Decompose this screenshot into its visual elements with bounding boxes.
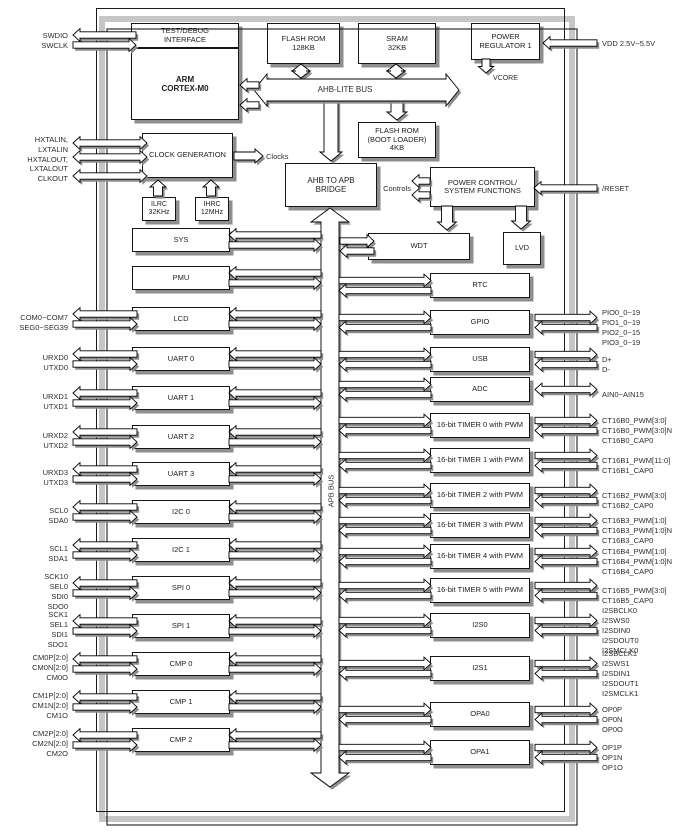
pin-label: CT16B2_CAP0: [602, 501, 686, 511]
block-opa1-label: OPA1: [470, 748, 489, 757]
pin-label: LXTALOUT: [2, 164, 68, 174]
block-16-bit-timer-0-with-pwm: 16-bit TIMER 0 with PWM: [430, 413, 530, 438]
pin-label: CT16B4_PWM[1:0]: [602, 547, 686, 557]
pin-label: OP1N: [602, 753, 686, 763]
pin-group-16-bit-timer-3-with-pwm: CT16B3_PWM[1:0]CT16B3_PWM[1:0]NCT16B3_CA…: [602, 516, 686, 546]
pin-label: I2SDOUT0: [602, 636, 686, 646]
block-ilrc-32khz-label: ILRC 32KHz: [148, 201, 169, 217]
pin-group-i2s1: I2SBCLK1I2SWS1I2SDIN1I2SDOUT1I2SMCLK1: [602, 649, 686, 699]
pin-label: CT16B3_PWM[1:0]: [602, 516, 686, 526]
block-lcd: LCD: [132, 307, 230, 331]
pin-label: CM2P[2:0]: [2, 729, 68, 739]
pin-label: I2SDIN1: [602, 669, 686, 679]
block-sys: SYS: [132, 228, 230, 252]
pin-group-spi-0: SCK10SEL0SDI0SDO0: [2, 572, 68, 612]
pin-label: SEL0: [2, 582, 68, 592]
pin-group-16-bit-timer-4-with-pwm: CT16B4_PWM[1:0]CT16B4_PWM[1:0]NCT16B4_CA…: [602, 547, 686, 577]
pin-label: OP0O: [602, 725, 686, 735]
pin-label: D-: [602, 365, 686, 375]
pin-group-swd: SWDIOSWCLK: [2, 31, 68, 51]
pin-label: CM1P[2:0]: [2, 691, 68, 701]
block-16-bit-timer-3-with-pwm-label: 16-bit TIMER 3 with PWM: [437, 521, 523, 530]
block-spi-0-label: SPI 0: [172, 584, 190, 593]
block-16-bit-timer-5-with-pwm: 16-bit TIMER 5 with PWM: [430, 578, 530, 603]
block-usb-label: USB: [472, 355, 487, 364]
block-spi-1-label: SPI 1: [172, 622, 190, 631]
pin-group-cmp-1: CM1P[2:0]CM1N[2:0]CM1O: [2, 691, 68, 721]
controls-label: Controls: [368, 184, 411, 193]
pin-group-uart-2: URXD2UTXD2: [2, 431, 68, 451]
pin-label: URXD0: [2, 353, 68, 363]
vcore-label: VCORE: [493, 75, 518, 82]
block-cmp-2-label: CMP 2: [170, 736, 193, 745]
block-uart-0: UART 0: [132, 347, 230, 371]
pin-label: CT16B4_CAP0: [602, 567, 686, 577]
pin-label: CM0P[2:0]: [2, 653, 68, 663]
pin-label: PIO3_0~19: [602, 338, 686, 348]
wires-layer: [0, 0, 687, 832]
block-lvd: LVD: [503, 232, 541, 265]
pin-label: CT16B1_CAP0: [602, 466, 686, 476]
block-flash-rom-128kb: FLASH ROM 128KB: [267, 23, 340, 64]
block-uart-1: UART 1: [132, 386, 230, 410]
pin-group-16-bit-timer-5-with-pwm: CT16B5_PWM[3:0]CT16B5_CAP0: [602, 586, 686, 606]
block-i2s0-label: I2S0: [472, 621, 487, 630]
pin-label: SCK1: [2, 610, 68, 620]
pin-label: I2SDOUT1: [602, 679, 686, 689]
pin-label: CM0N[2:0]: [2, 663, 68, 673]
block-power-control-system-functions: POWER CONTROL/ SYSTEM FUNCTIONS: [430, 167, 535, 207]
pin-group-vdd: VDD 2.5V~5.5V: [602, 39, 686, 49]
pin-label: OP0P: [602, 705, 686, 715]
block-adc-label: ADC: [472, 385, 488, 394]
pin-label: OP0N: [602, 715, 686, 725]
block-i2s1: I2S1: [430, 656, 530, 681]
block-ahb-to-apb-bridge: AHB TO APB BRIDGE: [285, 163, 377, 207]
block-opa1: OPA1: [430, 740, 530, 765]
pin-label: CT16B0_CAP0: [602, 436, 686, 446]
apb-bus-label: APB BUS: [327, 475, 336, 508]
block-pmu: PMU: [132, 266, 230, 290]
block-gpio: GPIO: [430, 310, 530, 335]
block-flash-rom-boot-loader-label: FLASH ROM (BOOT LOADER) 4KB: [367, 127, 426, 153]
pin-label: SWCLK: [2, 41, 68, 51]
pin-label: CM2O: [2, 749, 68, 759]
pin-group-opa0: OP0POP0NOP0O: [602, 705, 686, 735]
block-flash-rom-128kb-label: FLASH ROM 128KB: [282, 35, 326, 52]
block-uart-2-label: UART 2: [168, 433, 194, 442]
block-adc: ADC: [430, 377, 530, 402]
clocks-label: Clocks: [266, 152, 289, 161]
pin-group-i2c-0: SCL0SDA0: [2, 506, 68, 526]
block-ihrc-12mhz-label: IHRC 12MHz: [201, 201, 223, 217]
block-sram-32kb-label: SRAM 32KB: [386, 35, 408, 52]
block-clock-generation-label: CLOCK GENERATION: [149, 151, 226, 160]
block-i2s0: I2S0: [430, 613, 530, 638]
pin-label: SCL1: [2, 544, 68, 554]
pin-group-uart-3: URXD3UTXD3: [2, 468, 68, 488]
pin-group-16-bit-timer-0-with-pwm: CT16B0_PWM[3:0]CT16B0_PWM[3:0]NCT16B0_CA…: [602, 416, 686, 446]
pin-label: SCL0: [2, 506, 68, 516]
pin-label: CT16B5_CAP0: [602, 596, 686, 606]
block-wdt-label: WDT: [410, 242, 427, 251]
pin-label: CT16B5_PWM[3:0]: [602, 586, 686, 596]
block-opa0-label: OPA0: [470, 710, 489, 719]
pin-group-uart-0: URXD0UTXD0: [2, 353, 68, 373]
block-test-debug-interface-label: TEST/DEBUG INTERFACE: [161, 27, 209, 44]
pin-label: CLKOUT: [2, 174, 68, 184]
pin-label: I2SWS1: [602, 659, 686, 669]
block-rtc-label: RTC: [472, 281, 487, 290]
pin-label: CT16B0_PWM[3:0]N: [602, 426, 686, 436]
pin-label: LXTALIN: [2, 145, 68, 155]
block-spi-0: SPI 0: [132, 576, 230, 600]
pin-label: URXD3: [2, 468, 68, 478]
block-lcd-label: LCD: [173, 315, 188, 324]
block-gpio-label: GPIO: [471, 318, 490, 327]
block-spi-1: SPI 1: [132, 614, 230, 638]
pin-label: URXD2: [2, 431, 68, 441]
pin-group-16-bit-timer-2-with-pwm: CT16B2_PWM[3:0]CT16B2_CAP0: [602, 491, 686, 511]
pin-label: URXD1: [2, 392, 68, 402]
pin-label: AIN0~AIN15: [602, 390, 686, 400]
block-cmp-1-label: CMP 1: [170, 698, 193, 707]
block-sram-32kb: SRAM 32KB: [358, 23, 436, 64]
ahb-lite-bus-label: AHB-LITE BUS: [299, 85, 391, 94]
pin-label: UTXD3: [2, 478, 68, 488]
block-flash-rom-boot-loader: FLASH ROM (BOOT LOADER) 4KB: [358, 122, 436, 158]
pin-label: HXTALIN,: [2, 135, 68, 145]
pin-label: SEL1: [2, 620, 68, 630]
pin-label: I2SDIN0: [602, 626, 686, 636]
block-test-debug-interface: TEST/DEBUG INTERFACE: [131, 23, 239, 48]
block-16-bit-timer-2-with-pwm: 16-bit TIMER 2 with PWM: [430, 483, 530, 508]
block-opa0: OPA0: [430, 702, 530, 727]
pin-label: SEG0~SEG39: [2, 323, 68, 333]
pin-label: CM1O: [2, 711, 68, 721]
pin-group-16-bit-timer-1-with-pwm: CT16B1_PWM[11:0]CT16B1_CAP0: [602, 456, 686, 476]
block-rtc: RTC: [430, 273, 530, 298]
block-usb: USB: [430, 347, 530, 372]
pin-label: SWDIO: [2, 31, 68, 41]
pin-label: OP1O: [602, 763, 686, 773]
pin-group-adc: AIN0~AIN15: [602, 390, 686, 400]
block-16-bit-timer-4-with-pwm-label: 16-bit TIMER 4 with PWM: [437, 552, 523, 561]
block-ahb-to-apb-bridge-label: AHB TO APB BRIDGE: [307, 176, 354, 194]
pin-group-opa1: OP1POP1NOP1O: [602, 743, 686, 773]
pin-group-reset: /RESET: [602, 184, 686, 194]
pin-label: SDI1: [2, 630, 68, 640]
pin-label: COM0~COM7: [2, 313, 68, 323]
pin-label: SDA1: [2, 554, 68, 564]
block-i2s1-label: I2S1: [472, 664, 487, 673]
block-16-bit-timer-4-with-pwm: 16-bit TIMER 4 with PWM: [430, 544, 530, 569]
block-ilrc-32khz: ILRC 32KHz: [142, 197, 176, 221]
block-i2c-1: I2C 1: [132, 538, 230, 562]
pin-label: UTXD0: [2, 363, 68, 373]
pin-group-uart-1: URXD1UTXD1: [2, 392, 68, 412]
pin-label: I2SBCLK1: [602, 649, 686, 659]
pin-label: CT16B3_CAP0: [602, 536, 686, 546]
pin-label: D+: [602, 355, 686, 365]
pin-label: CT16B3_PWM[1:0]N: [602, 526, 686, 536]
pin-group-i2c-1: SCL1SDA1: [2, 544, 68, 564]
pin-label: SDA0: [2, 516, 68, 526]
pin-label: CT16B0_PWM[3:0]: [602, 416, 686, 426]
block-16-bit-timer-1-with-pwm: 16-bit TIMER 1 with PWM: [430, 448, 530, 473]
block-16-bit-timer-0-with-pwm-label: 16-bit TIMER 0 with PWM: [437, 421, 523, 430]
block-power-regulator-1: POWER REGULATOR 1: [471, 23, 540, 60]
block-pmu-label: PMU: [173, 274, 190, 283]
block-cmp-2: CMP 2: [132, 728, 230, 752]
pin-label: CM1N[2:0]: [2, 701, 68, 711]
block-uart-0-label: UART 0: [168, 355, 194, 364]
pin-label: CT16B1_PWM[11:0]: [602, 456, 686, 466]
block-ihrc-12mhz: IHRC 12MHz: [195, 197, 229, 221]
pin-label: CT16B2_PWM[3:0]: [602, 491, 686, 501]
block-cmp-0: CMP 0: [132, 652, 230, 676]
block-cmp-1: CMP 1: [132, 690, 230, 714]
block-16-bit-timer-1-with-pwm-label: 16-bit TIMER 1 with PWM: [437, 456, 523, 465]
pin-group-cmp-2: CM2P[2:0]CM2N[2:0]CM2O: [2, 729, 68, 759]
pin-label: CM2N[2:0]: [2, 739, 68, 749]
pin-group-gpio: PIO0_0~19PIO1_0~19PIO2_0~15PIO3_0~19: [602, 308, 686, 348]
block-i2c-1-label: I2C 1: [172, 546, 190, 555]
block-wdt: WDT: [368, 233, 470, 260]
block-uart-3: UART 3: [132, 462, 230, 486]
block-uart-3-label: UART 3: [168, 470, 194, 479]
block-sys-label: SYS: [173, 236, 188, 245]
block-arm-cortex-m0-label: ARM CORTEX-M0: [161, 75, 208, 93]
block-uart-1-label: UART 1: [168, 394, 194, 403]
pin-label: CT16B4_PWM[1:0]N: [602, 557, 686, 567]
block-lvd-label: LVD: [515, 244, 529, 253]
block-power-control-system-functions-label: POWER CONTROL/ SYSTEM FUNCTIONS: [444, 179, 521, 196]
block-16-bit-timer-2-with-pwm-label: 16-bit TIMER 2 with PWM: [437, 491, 523, 500]
block-cmp-0-label: CMP 0: [170, 660, 193, 669]
pin-group-usb: D+D-: [602, 355, 686, 375]
pin-label: HXTALOUT,: [2, 155, 68, 165]
block-arm-cortex-m0: ARM CORTEX-M0: [131, 48, 239, 120]
mcu-block-diagram: TEST/DEBUG INTERFACE ARM CORTEX-M0 FLASH…: [0, 0, 687, 832]
block-power-regulator-1-label: POWER REGULATOR 1: [479, 33, 531, 50]
pin-group-clock: HXTALIN,LXTALINHXTALOUT,LXTALOUTCLKOUT: [2, 135, 68, 184]
pin-label: UTXD2: [2, 441, 68, 451]
block-i2c-0-label: I2C 0: [172, 508, 190, 517]
pin-label: CM0O: [2, 673, 68, 683]
pin-group-lcd: COM0~COM7SEG0~SEG39: [2, 313, 68, 333]
pin-label: /RESET: [602, 184, 686, 194]
pin-group-spi-1: SCK1SEL1SDI1SDO1: [2, 610, 68, 650]
pin-label: UTXD1: [2, 402, 68, 412]
pin-label: VDD 2.5V~5.5V: [602, 39, 686, 49]
pin-label: I2SMCLK1: [602, 689, 686, 699]
pin-group-cmp-0: CM0P[2:0]CM0N[2:0]CM0O: [2, 653, 68, 683]
block-clock-generation: CLOCK GENERATION: [142, 133, 233, 178]
pin-label: PIO0_0~19: [602, 308, 686, 318]
pin-label: PIO2_0~15: [602, 328, 686, 338]
pin-label: SDO1: [2, 640, 68, 650]
pin-label: PIO1_0~19: [602, 318, 686, 328]
pin-label: I2SWS0: [602, 616, 686, 626]
pin-label: OP1P: [602, 743, 686, 753]
block-16-bit-timer-5-with-pwm-label: 16-bit TIMER 5 with PWM: [437, 586, 523, 595]
block-16-bit-timer-3-with-pwm: 16-bit TIMER 3 with PWM: [430, 513, 530, 538]
pin-label: SCK10: [2, 572, 68, 582]
pin-label: SDI0: [2, 592, 68, 602]
block-i2c-0: I2C 0: [132, 500, 230, 524]
pin-label: I2SBCLK0: [602, 606, 686, 616]
block-uart-2: UART 2: [132, 425, 230, 449]
